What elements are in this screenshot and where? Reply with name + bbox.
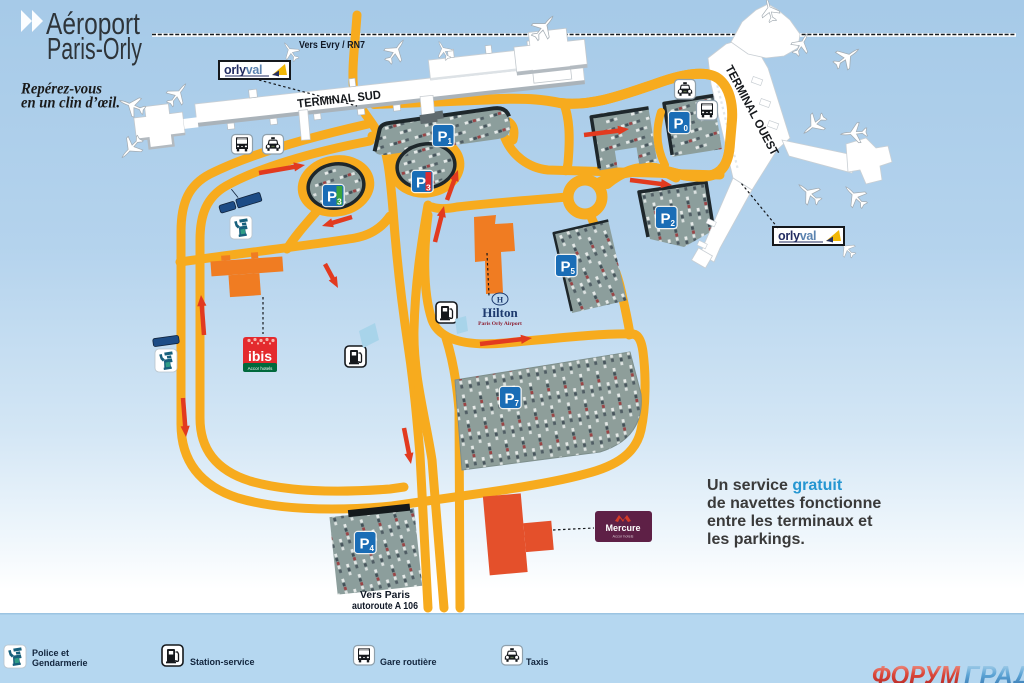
svg-text:0: 0 <box>684 124 689 133</box>
svg-text:Paris-Orly: Paris-Orly <box>47 31 142 66</box>
svg-text:Hilton: Hilton <box>482 305 518 320</box>
svg-text:7: 7 <box>515 399 520 408</box>
svg-text:Paris Orly Airport: Paris Orly Airport <box>478 321 522 327</box>
svg-text:ФОРУМ: ФОРУМ <box>872 660 961 683</box>
svg-text:1: 1 <box>448 137 453 146</box>
svg-text:3: 3 <box>426 183 431 193</box>
svg-text:ГРАД: ГРАД <box>964 660 1024 683</box>
svg-text:Accor hotels: Accor hotels <box>248 366 274 371</box>
svg-text:entre les terminaux et: entre les terminaux et <box>707 513 873 530</box>
svg-text:ibis: ibis <box>248 348 272 364</box>
svg-text:Un service gratuit: Un service gratuit <box>707 477 843 494</box>
svg-text:H: H <box>497 296 504 305</box>
svg-text:de navettes fonctionne: de navettes fonctionne <box>707 495 881 512</box>
svg-text:4: 4 <box>370 544 375 553</box>
svg-text:Gendarmerie: Gendarmerie <box>32 658 88 668</box>
svg-text:Police et: Police et <box>32 648 69 658</box>
svg-text:Gare routière: Gare routière <box>380 657 437 667</box>
svg-text:Accor hotels: Accor hotels <box>613 535 634 539</box>
svg-text:2: 2 <box>671 219 676 228</box>
svg-text:les parkings.: les parkings. <box>707 531 805 548</box>
svg-text:Mercure: Mercure <box>605 523 640 533</box>
svg-text:autoroute A 106: autoroute A 106 <box>352 600 418 612</box>
svg-text:Station-service: Station-service <box>190 657 255 667</box>
svg-text:5: 5 <box>571 267 576 276</box>
svg-text:en un clin d’œil.: en un clin d’œil. <box>21 95 120 112</box>
svg-text:Taxis: Taxis <box>526 657 548 667</box>
svg-text:P: P <box>416 175 426 192</box>
svg-text:Vers Evry / RN7: Vers Evry / RN7 <box>299 39 365 51</box>
svg-text:3: 3 <box>337 197 342 207</box>
svg-text:P: P <box>327 189 337 206</box>
